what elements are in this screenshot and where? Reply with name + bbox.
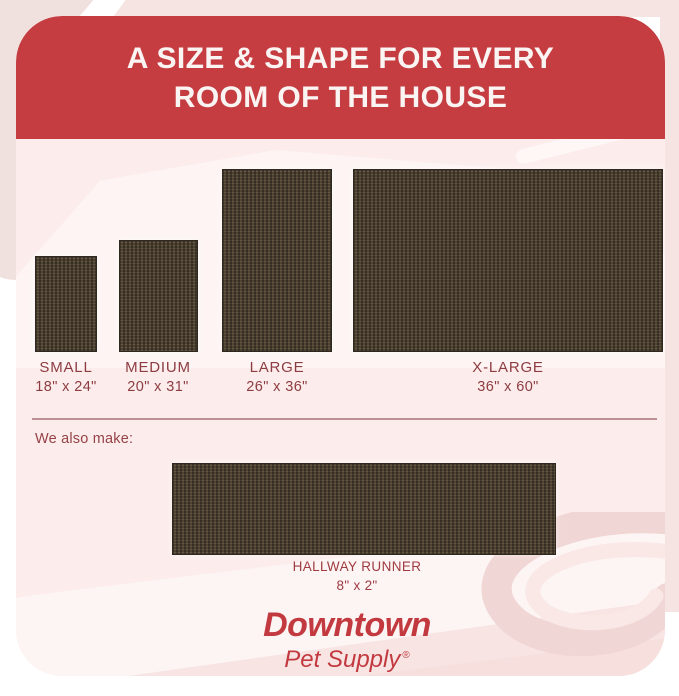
header-banner: A SIZE & SHAPE FOR EVERY ROOM OF THE HOU… — [16, 16, 665, 139]
size-dimensions: 20" x 31" — [93, 379, 223, 395]
brand-subtitle: Pet Supply® — [217, 643, 477, 673]
runner-name: HALLWAY RUNNER — [237, 559, 477, 574]
runner-label: HALLWAY RUNNER 8" x 2" — [237, 559, 477, 593]
background-strip-top — [40, 0, 679, 17]
size-label-xlarge: X-LARGE 36" x 60" — [443, 359, 573, 395]
size-name: LARGE — [212, 359, 342, 376]
registered-mark: ® — [402, 650, 409, 661]
mat-large — [222, 169, 332, 352]
header-title-line-1: A SIZE & SHAPE FOR EVERY — [127, 39, 554, 78]
brand-name: Downtown — [217, 608, 477, 642]
size-name: MEDIUM — [93, 359, 223, 376]
runner-dimensions: 8" x 2" — [237, 578, 477, 593]
size-dimensions: 26" x 36" — [212, 379, 342, 395]
size-label-medium: MEDIUM 20" x 31" — [93, 359, 223, 395]
mat-small — [35, 256, 97, 352]
brand-subtitle-text: Pet Supply — [284, 646, 400, 673]
mat-medium — [119, 240, 198, 352]
mat-xlarge — [353, 169, 663, 352]
size-dimensions: 36" x 60" — [443, 379, 573, 395]
header-title-line-2: ROOM OF THE HOUSE — [174, 78, 507, 117]
infographic: A SIZE & SHAPE FOR EVERY ROOM OF THE HOU… — [0, 0, 679, 696]
size-name: X-LARGE — [443, 359, 573, 376]
size-guide-card: A SIZE & SHAPE FOR EVERY ROOM OF THE HOU… — [16, 16, 665, 676]
also-make-label: We also make: — [35, 431, 133, 447]
brand-logo: Downtown Pet Supply® — [217, 608, 477, 673]
size-label-large: LARGE 26" x 36" — [212, 359, 342, 395]
divider-line — [32, 418, 657, 420]
mat-hallway-runner — [172, 463, 556, 555]
